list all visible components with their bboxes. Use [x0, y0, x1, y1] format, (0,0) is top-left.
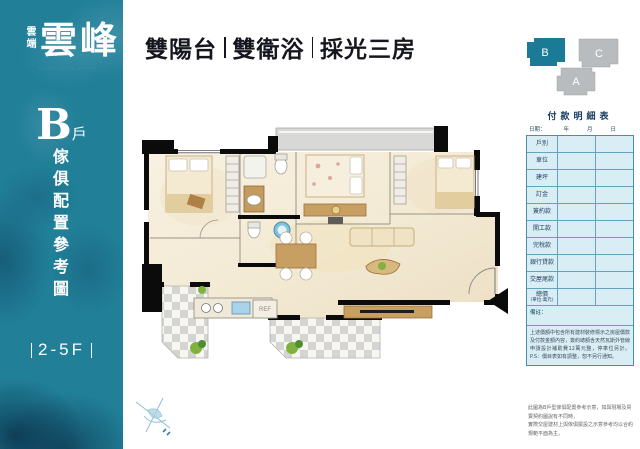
compass-sketch [130, 394, 182, 448]
feature-divider [312, 37, 314, 58]
row-value-cell [596, 170, 633, 186]
keyplan-label-b: B [541, 47, 548, 59]
row-label: 建坪 [527, 170, 558, 186]
feature-divider [224, 37, 226, 58]
keyplan-label-a: A [572, 76, 580, 88]
row-label-total: 總價 (單位:萬元) [527, 289, 558, 305]
row-value-cell [558, 221, 596, 237]
table-row: 戶別 [527, 136, 633, 153]
payment-table-title: 付款明細表 [526, 109, 634, 122]
feature-3: 採光三房 [320, 30, 416, 64]
row-value-cell [558, 255, 596, 271]
row-label: 完稅款 [527, 238, 558, 254]
date-label: 日期： [529, 125, 546, 133]
row-value-cell [558, 272, 596, 288]
plan-subtitle-vertical: 傢俱配置參考圖 [47, 148, 71, 328]
row-value-cell [596, 272, 633, 288]
brand-name: 雲峰 [40, 20, 120, 61]
row-value-cell [558, 187, 596, 203]
row-label: 簽約款 [527, 204, 558, 220]
table-row-total: 總價 (單位:萬元) [527, 289, 633, 306]
payment-table-grid: 戶別 車位 建坪 訂金 簽約款 開工款 [526, 135, 634, 366]
floor-range-right-bar [91, 343, 92, 358]
table-row: 車位 [527, 153, 633, 170]
unit-title: B戶 [0, 100, 123, 149]
row-value-cell [596, 153, 633, 169]
row-value-cell [558, 204, 596, 220]
kitchen: REF [194, 298, 277, 318]
brand-tagline: ····· ····· ····· [24, 66, 110, 71]
total-label-line1: 總價 [536, 291, 548, 298]
table-row: 簽約款 [527, 204, 633, 221]
total-label-line2: (單位:萬元) [530, 298, 553, 303]
brand-prefix: 雲端 [22, 26, 37, 50]
table-row: 開工款 [527, 221, 633, 238]
row-value-cell [558, 170, 596, 186]
row-value-cell [596, 289, 633, 305]
row-value-cell [596, 204, 633, 220]
disclaimer-line1: 此圖為B戶型傢俱配置參考示意，如與現場及買賣契約圖說有不同時， [528, 404, 636, 421]
keyplan-svg: B C A [517, 28, 639, 108]
payment-table: 付款明細表 日期： 年 月 日 戶別 車位 建坪 訂金 簽約款 [526, 109, 634, 366]
row-label: 交屋尾款 [527, 272, 558, 288]
row-value-cell [596, 255, 633, 271]
row-value-cell [596, 221, 633, 237]
row-label: 車位 [527, 153, 558, 169]
keyplan: B C A [517, 28, 639, 112]
table-fine-print: 上述價額中包含所有建材裝修標示之房屋價款及付款金額內容，簽約總額含天然瓦斯外管線… [527, 325, 633, 365]
top-balcony [268, 126, 448, 152]
floor-range-left-bar [31, 343, 32, 358]
row-label: 訂金 [527, 187, 558, 203]
floor-range-text: 2-5F [38, 340, 85, 360]
date-unit-day: 日 [611, 125, 617, 133]
row-value-cell [558, 238, 596, 254]
rear-balcony [270, 318, 380, 358]
table-row: 建坪 [527, 170, 633, 187]
row-label: 開工款 [527, 221, 558, 237]
keyplan-label-c: C [595, 48, 603, 60]
notes-area: 備註： [527, 306, 633, 325]
row-label: 戶別 [527, 136, 558, 152]
floorplan-svg: REF [140, 126, 508, 374]
floorplan-drawing: REF [140, 126, 508, 378]
table-row: 訂金 [527, 187, 633, 204]
date-unit-year: 年 [564, 125, 570, 133]
table-row: 交屋尾款 [527, 272, 633, 289]
brand-logo: 雲端 雲峰 [22, 20, 120, 61]
brand-sidebar: 雲端 雲峰 ····· ····· ····· B戶 傢俱配置參考圖 2-5F [0, 0, 123, 449]
row-value-cell [596, 187, 633, 203]
row-value-cell [596, 238, 633, 254]
row-value-cell [558, 136, 596, 152]
payment-table-date-row: 日期： 年 月 日 [526, 122, 634, 135]
page-disclaimer: 此圖為B戶型傢俱配置參考示意，如與現場及買賣契約圖說有不同時， 實際交屋建材上與… [528, 404, 636, 438]
feature-1: 雙陽台 [145, 30, 217, 64]
unit-suffix: 戶 [72, 125, 87, 143]
floor-range: 2-5F [0, 340, 123, 360]
unit-letter: B [36, 100, 72, 149]
table-row: 銀行貸款 [527, 255, 633, 272]
feature-2: 雙衛浴 [233, 30, 305, 64]
row-value-cell [596, 136, 633, 152]
date-unit-month: 月 [587, 125, 593, 133]
row-label: 銀行貸款 [527, 255, 558, 271]
compass-svg [130, 394, 182, 444]
feature-headline: 雙陽台 雙衛浴 採光三房 [145, 30, 416, 64]
disclaimer-line2: 實際交屋建材上與傢俱擺設之示意參考均以合約規範平面為主。 [528, 421, 636, 438]
row-value-cell [558, 153, 596, 169]
table-row: 完稅款 [527, 238, 633, 255]
bedroom-2 [304, 155, 366, 224]
fridge-label: REF [259, 307, 271, 313]
row-value-cell [558, 289, 596, 305]
